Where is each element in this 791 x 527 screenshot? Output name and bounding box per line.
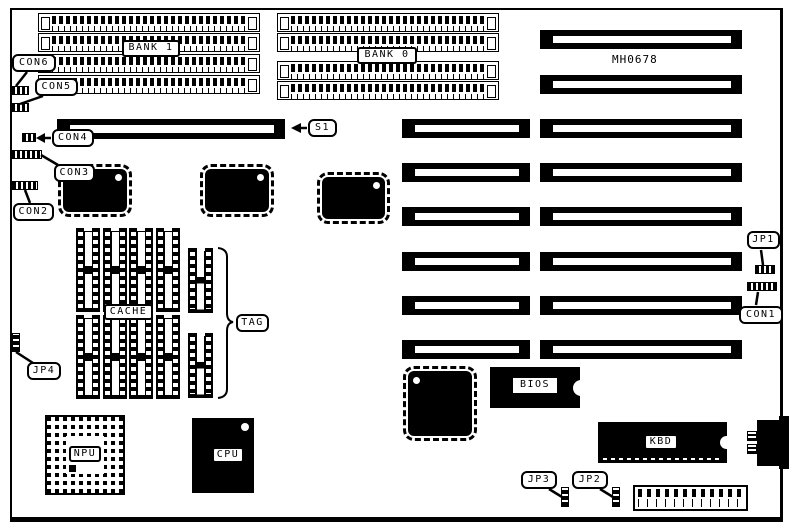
board-code: MH0678 [612, 53, 658, 66]
simm-socket [277, 13, 499, 32]
con5-connector [11, 103, 29, 112]
cache-socket [76, 315, 100, 399]
isa-slot-segment [402, 163, 530, 182]
isa-slot-segment [540, 207, 742, 226]
cache-socket [103, 228, 127, 312]
cache-label: CACHE [104, 304, 153, 320]
jp1-label: JP1 [747, 231, 780, 249]
tag-label: TAG [236, 314, 269, 332]
cpu-label: CPU [212, 447, 244, 463]
jp2-jumper [612, 487, 620, 507]
jp2-label: JP2 [572, 471, 608, 489]
isa-slot-segment [540, 252, 742, 271]
isa-slot-segment [540, 119, 742, 138]
isa-slot-segment [540, 163, 742, 182]
con5-label: CON5 [35, 78, 78, 96]
cache-socket [156, 315, 180, 399]
din-flange [779, 416, 789, 469]
bank1-label: BANK 1 [122, 40, 180, 57]
pin1-dot [413, 377, 420, 384]
simm-socket [38, 13, 260, 32]
con1-connector [747, 282, 777, 291]
jp1-jumper [755, 265, 775, 274]
bios-notch [573, 380, 582, 396]
isa-slot-segment [402, 207, 530, 226]
qfp-chip [205, 169, 269, 212]
motherboard-diagram: BANK 1 BANK 0 S1 CON6 CON5 CON4 CON3 CON… [0, 0, 791, 527]
cache-socket [129, 228, 153, 312]
jp4-label: JP4 [27, 362, 61, 380]
power-connector [633, 485, 748, 511]
qfp-chip [322, 177, 385, 219]
con6-connector [11, 86, 29, 95]
cache-socket [129, 315, 153, 399]
npu-label: NPU [69, 446, 101, 462]
pin1-dot [373, 182, 380, 189]
isa-slot-segment [540, 75, 742, 94]
con3-connector [11, 150, 42, 159]
din-pin-tab [747, 431, 757, 441]
jp3-label: JP3 [521, 471, 557, 489]
simm-socket [277, 81, 499, 100]
bios-label: BIOS [513, 378, 557, 393]
tag-socket [188, 333, 213, 398]
isa-slot-segment [402, 119, 530, 138]
jp3-jumper [561, 487, 569, 507]
cache-socket [76, 228, 100, 312]
con2-connector [12, 181, 38, 190]
con4-label: CON4 [52, 129, 94, 147]
cache-socket [103, 315, 127, 399]
kbd-label: KBD [644, 434, 678, 450]
isa-slot-segment [540, 340, 742, 359]
qfp-chip [408, 371, 472, 436]
isa-slot-segment [402, 252, 530, 271]
cache-socket [156, 228, 180, 312]
con4-connector [22, 133, 36, 142]
s1-label: S1 [308, 119, 337, 137]
isa-slot-segment [540, 296, 742, 315]
din-pin-tab [747, 444, 757, 454]
con2-label: CON2 [13, 203, 54, 221]
bank0-label: BANK 0 [357, 47, 417, 64]
isa-slot-segment [540, 30, 742, 49]
con6-label: CON6 [12, 54, 56, 72]
isa-slot-segment [402, 296, 530, 315]
npu-pin1-dot [69, 465, 76, 472]
pin1-dot [257, 174, 264, 181]
con1-label: CON1 [739, 306, 783, 324]
kbd-notch [720, 436, 728, 449]
con3-label: CON3 [54, 164, 95, 182]
pin1-dot [241, 423, 249, 431]
pin1-dot [115, 174, 122, 181]
tag-socket [188, 248, 213, 313]
isa-slot-segment [402, 340, 530, 359]
jp4-jumper [12, 333, 20, 352]
